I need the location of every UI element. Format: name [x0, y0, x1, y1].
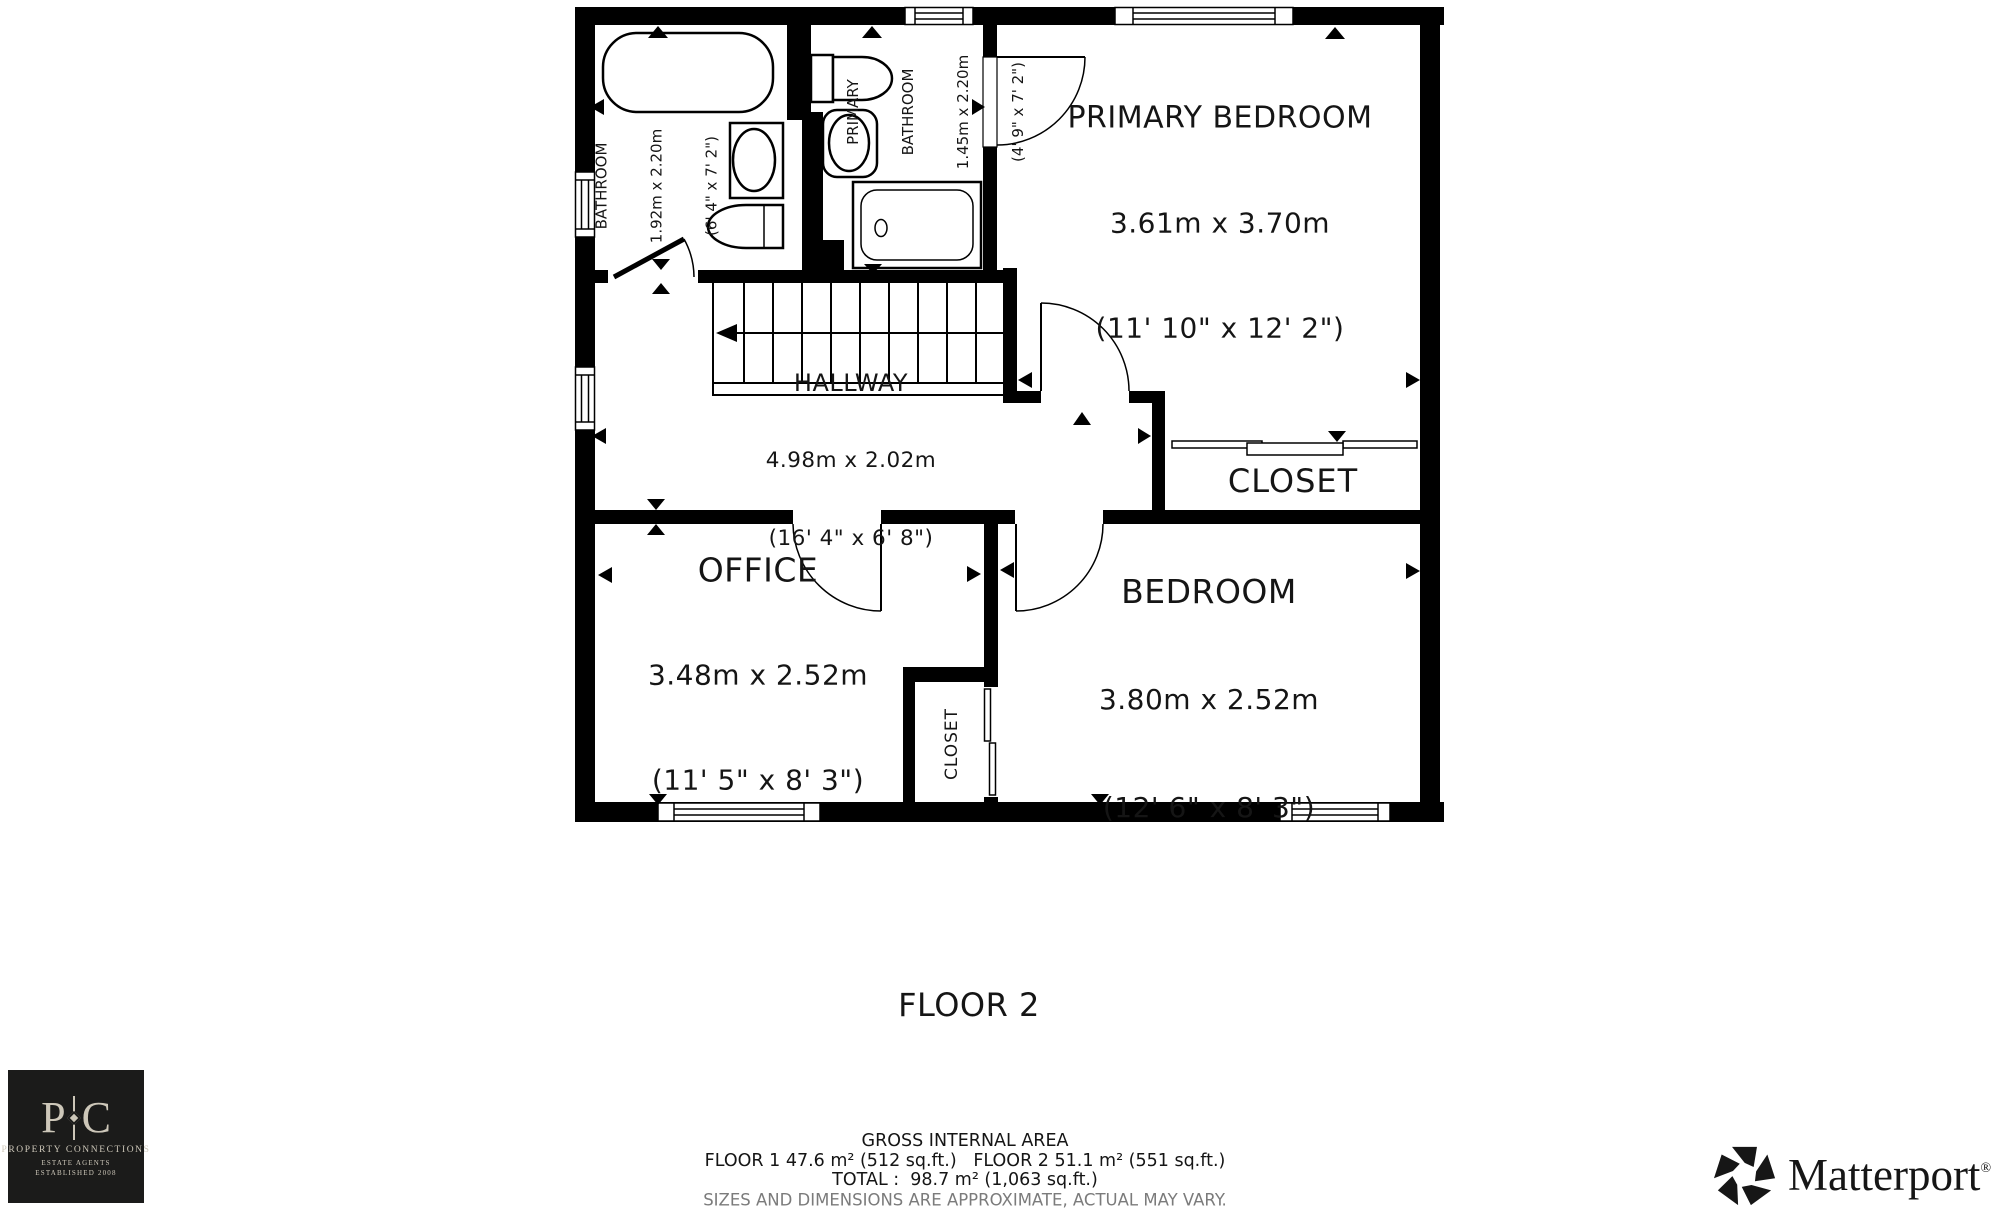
room-dim-imperial: (11' 5" x 8' 3"): [648, 763, 868, 798]
marker-icon: [1018, 372, 1032, 388]
room-dim-metric: 4.98m x 2.02m: [766, 448, 937, 474]
gross-internal-area-title: GROSS INTERNAL AREA: [862, 1131, 1069, 1151]
marker-icon: [652, 259, 670, 270]
matterport-icon: [1711, 1143, 1778, 1207]
floor-plan-drawing: [0, 0, 2016, 1216]
marker-icon: [1000, 562, 1014, 578]
marker-icon: [1406, 372, 1420, 388]
stairs-direction-arrow: [716, 324, 737, 342]
window-icon: [1115, 8, 1293, 25]
bathroom-label: BATHROOM 1.92m x 2.20m (6' 4" x 7' 2"): [556, 129, 759, 243]
shower-icon: [853, 182, 981, 268]
room-dim-imperial: (12' 6" x 8' 3"): [1099, 790, 1319, 826]
door-opening: [1015, 510, 1103, 524]
room-dim-imperial: (4' 9" x 7' 2"): [1010, 55, 1027, 169]
bedroom-label: BEDROOM 3.80m x 2.52m (12' 6" x 8' 3"): [1099, 502, 1319, 898]
pc-subtitle-2: ESTABLISHED 2008: [35, 1169, 116, 1177]
pc-letter-p: P: [41, 1096, 65, 1140]
primary-bedroom-label: PRIMARY BEDROOM 3.61m x 3.70m (11' 10" x…: [1067, 31, 1372, 416]
bathtub-icon: [603, 33, 773, 112]
matterport-logo: Matterport®: [1711, 1143, 1991, 1207]
wall: [575, 7, 1444, 25]
window-icon: [905, 8, 973, 25]
marker-icon: [598, 567, 612, 583]
room-name: HALLWAY: [766, 370, 937, 396]
room-dim-metric: 1.92m x 2.20m: [649, 129, 666, 243]
marker-icon: [967, 566, 981, 582]
room-dim-metric: 3.80m x 2.52m: [1099, 682, 1319, 718]
disclaimer-text: SIZES AND DIMENSIONS ARE APPROXIMATE, AC…: [703, 1191, 1227, 1210]
wall: [1420, 7, 1440, 822]
property-connections-logo: P C PROPERTY CONNECTIONS ESTATE AGENTS E…: [8, 1070, 144, 1203]
door-swing-icon: [1016, 524, 1103, 611]
pc-divider-line: [73, 1096, 75, 1140]
pc-diamond-icon: [66, 1111, 80, 1125]
pc-name-text: PROPERTY CONNECTIONS: [1, 1145, 150, 1155]
room-name: PRIMARY BEDROOM: [1067, 101, 1372, 136]
floorplan-page: PRIMARY BEDROOM 3.61m x 3.70m (11' 10" x…: [0, 0, 2016, 1216]
small-closet-label: CLOSET: [942, 708, 962, 780]
room-name: OFFICE: [648, 553, 868, 588]
marker-icon: [1406, 563, 1420, 579]
room-name: BATHROOM: [594, 129, 611, 243]
room-name: PRIMARY: [845, 55, 862, 169]
wall: [810, 240, 844, 272]
closet-label: CLOSET: [1228, 462, 1358, 500]
pc-letter-c: C: [82, 1096, 111, 1140]
room-dim-imperial: (11' 10" x 12' 2"): [1067, 311, 1372, 346]
room-name: BEDROOM: [1099, 574, 1319, 610]
pc-monogram: P C: [41, 1096, 111, 1140]
primary-bathroom-label: PRIMARY BATHROOM 1.45m x 2.20m (4' 9" x …: [807, 55, 1065, 169]
room-dim-imperial: (6' 4" x 7' 2"): [704, 129, 721, 243]
registered-mark: ®: [1980, 1161, 1991, 1176]
marker-icon: [652, 283, 670, 294]
room-name: BATHROOM: [900, 55, 917, 169]
room-dim-metric: 3.48m x 2.52m: [648, 658, 868, 693]
room-dim-metric: 3.61m x 3.70m: [1067, 206, 1372, 241]
marker-icon: [862, 26, 882, 38]
pc-subtitle-1: ESTATE AGENTS: [41, 1159, 110, 1167]
sliding-door-icon: [1172, 441, 1417, 455]
window-icon: [576, 367, 595, 430]
office-label: OFFICE 3.48m x 2.52m (11' 5" x 8' 3"): [648, 483, 868, 868]
matterport-wordmark: Matterport®: [1788, 1153, 1991, 1198]
floor-areas-line: FLOOR 1 47.6 m² (512 sq.ft.) FLOOR 2 51.…: [705, 1151, 1226, 1171]
wall: [903, 667, 915, 802]
wall: [903, 667, 998, 682]
floor-title: FLOOR 2: [898, 986, 1040, 1024]
marker-icon: [1138, 428, 1151, 444]
room-dim-metric: 1.45m x 2.20m: [955, 55, 972, 169]
total-area-line: TOTAL : 98.7 m² (1,063 sq.ft.): [832, 1170, 1098, 1190]
